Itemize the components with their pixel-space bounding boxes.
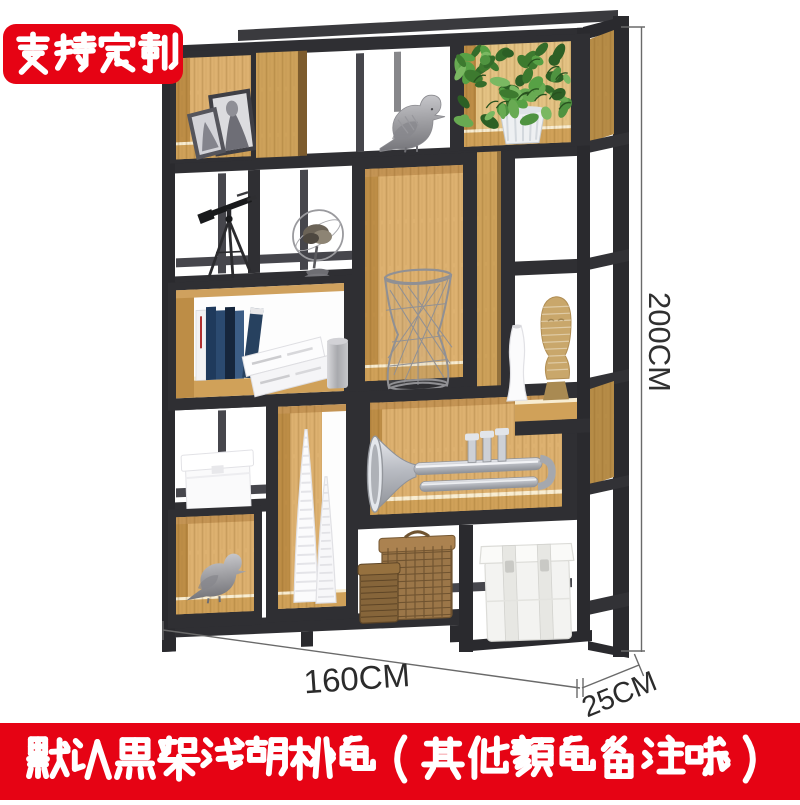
svg-text:160CM: 160CM	[302, 656, 411, 700]
svg-text:200CM: 200CM	[642, 292, 677, 392]
